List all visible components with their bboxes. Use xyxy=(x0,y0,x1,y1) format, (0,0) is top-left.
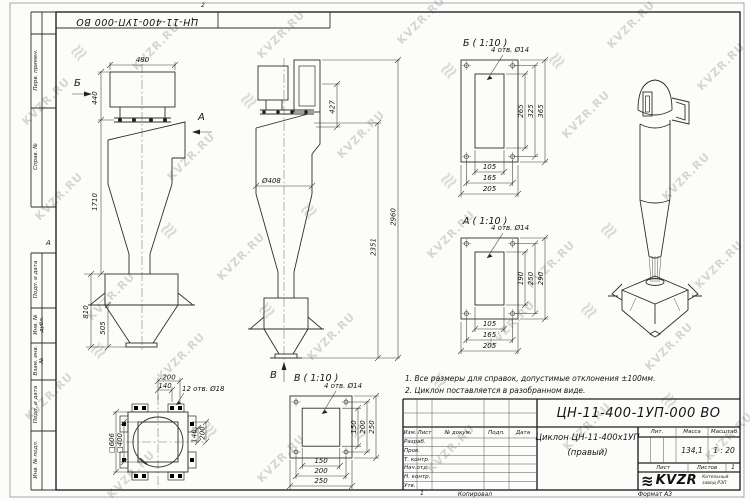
tb-col-list: Лист xyxy=(417,428,432,438)
side-view-dimensions: 480 440 1710 810 505 xyxy=(82,56,178,350)
dim-265: 265 xyxy=(517,104,525,118)
drawing-sheet: KVZR.RUKVZR.RUKVZR.RUKVZR.RUKVZR.RUKVZR.… xyxy=(0,0,750,500)
isometric-outline xyxy=(608,80,702,337)
section-label-a: А xyxy=(197,112,205,123)
margin-label-podp-data-1: Подп. и дата xyxy=(33,253,39,306)
front-view-outline xyxy=(248,60,324,358)
detail-a-holes: 4 отв. Ø14 xyxy=(491,224,529,232)
dim-427: 427 xyxy=(329,100,337,114)
tb-scale-value: 1 : 20 xyxy=(708,437,740,463)
margin-label-inv-dubl: Инв. № дубл. xyxy=(33,308,45,341)
detail-v-holes: 4 отв. Ø14 xyxy=(324,382,362,390)
tb-row-nkontr: Н. контр. xyxy=(404,473,432,482)
dim-165: 165 xyxy=(483,174,497,182)
dim-165: 165 xyxy=(483,331,497,339)
dim-150h: 150 xyxy=(314,457,328,465)
tb-col-data: Дата xyxy=(509,428,537,438)
dim-140-top: 140 xyxy=(158,382,172,390)
dim-1710: 1710 xyxy=(91,193,99,211)
dim-150: 150 xyxy=(350,420,358,434)
note-line-1: 1. Все размеры для справок, допустимые о… xyxy=(405,374,655,383)
margin-label-vzam-inv: Взам. инв. № xyxy=(33,343,45,378)
dim-250: 250 xyxy=(368,420,376,434)
tb-name-line1: Циклон ЦН-11-400х1УП xyxy=(538,431,637,445)
dim-365: 365 xyxy=(537,104,545,118)
detail-a-dimensions: 190 250 290 105 165 205 xyxy=(458,235,548,354)
margin-label-sprav-no: Справ. № xyxy=(33,108,39,205)
detail-a-leader: 4 отв. Ø14 xyxy=(487,224,529,258)
detail-b-leader: 4 отв. Ø14 xyxy=(487,46,529,80)
detail-view-v: В ( 1:10 ) 4 отв. Ø14 150 200 250 150 20… xyxy=(272,368,402,500)
base-plan-holes: 12 отв. Ø18 xyxy=(182,385,225,393)
section-arrow-b: Б xyxy=(72,78,92,97)
tb-col-podp: Подп. xyxy=(484,428,509,438)
tb-scale-label: Масштаб xyxy=(708,427,740,437)
tb-mass-value: 134,1 xyxy=(676,437,708,463)
side-view: 480 440 1710 810 505 Б А xyxy=(70,52,220,352)
dim-205: 205 xyxy=(483,342,497,350)
detail-v-dimensions: 150 200 250 150 200 250 xyxy=(287,393,379,489)
dim-2960: 2960 xyxy=(390,208,398,226)
section-arrow-a: А xyxy=(192,112,212,135)
top-doc-number: ЦН-11-400-1УП-000 ВО xyxy=(60,13,214,27)
tb-sheets-value: 1 xyxy=(726,463,740,472)
detail-b-outline xyxy=(461,60,518,162)
top-zone-mark: 2 xyxy=(201,2,205,9)
detail-v-leader: 4 отв. Ø14 xyxy=(322,382,362,414)
note-line-2: 2. Циклон поставляется в разобранном вид… xyxy=(405,386,585,395)
tb-row-nachotd: Нач.отд. xyxy=(404,464,432,473)
dim-325: 325 xyxy=(527,104,535,118)
detail-view-b: Б ( 1:10 ) 4 отв. Ø14 265 325 365 105 16… xyxy=(445,34,573,206)
tb-row-tkontr: Т. контр. xyxy=(404,455,432,464)
kvzr-logo-subtitle: Котельный завод РЭП xyxy=(702,475,728,486)
dim-200: 200 xyxy=(359,420,367,434)
front-view: Ø408 427 2351 2960 В xyxy=(238,52,413,387)
detail-view-a: А ( 1:10 ) 4 отв. Ø14 190 250 290 105 16… xyxy=(445,212,573,364)
dim-250h: 250 xyxy=(314,477,328,485)
kvzr-logo-text: KVZR xyxy=(656,473,698,488)
dim-810: 810 xyxy=(82,305,90,319)
side-view-outline xyxy=(88,72,195,347)
dim-480: 480 xyxy=(136,56,150,64)
dim-200-right: 200 xyxy=(199,426,207,440)
detail-b-dimensions: 265 325 365 105 165 205 xyxy=(458,57,548,197)
dim-dia408: Ø408 xyxy=(261,177,281,185)
tb-row-razrab: Разраб. xyxy=(404,438,432,447)
section-label-b: Б xyxy=(74,78,81,89)
bottom-copied-label: Копировал xyxy=(445,490,505,499)
tb-col-izm: Изм. xyxy=(403,428,417,438)
front-view-dimensions: Ø408 427 2351 2960 xyxy=(253,57,401,361)
base-plan-view: 200 140 12 отв. Ø18 140 200 □606 □400 xyxy=(80,372,238,490)
company-logo: ≋ KVZR Котельный завод РЭП xyxy=(641,472,739,489)
tb-row-utv: Утв. xyxy=(404,481,432,490)
dim-105: 105 xyxy=(483,163,497,171)
margin-label-perv-primen: Перв. примен. xyxy=(33,34,39,106)
dim-sq606: □606 xyxy=(108,432,116,453)
tb-lit-label: Лит. xyxy=(638,427,676,437)
kvzr-sub-line2: завод РЭП xyxy=(702,481,728,487)
tb-row-prov: Пров. xyxy=(404,447,432,456)
dim-250: 250 xyxy=(527,271,535,285)
dim-290: 290 xyxy=(537,271,545,285)
isometric-view xyxy=(592,70,722,335)
dim-140-right: 140 xyxy=(191,429,199,443)
dim-190: 190 xyxy=(517,271,525,285)
detail-v-outline xyxy=(290,396,352,458)
tb-mass-label: Масса xyxy=(676,427,708,437)
kvzr-logo-icon: ≋ xyxy=(641,473,654,489)
dim-200h: 200 xyxy=(314,467,328,475)
detail-a-outline xyxy=(461,238,518,319)
dim-505: 505 xyxy=(99,321,107,335)
tb-col-docnum: № докум. xyxy=(432,428,484,438)
dim-105: 105 xyxy=(483,320,497,328)
dim-440: 440 xyxy=(91,91,99,105)
margin-label-podp-data-2: Подп. и дата xyxy=(33,380,39,429)
tb-designation: ЦН-11-400-1УП-000 ВО xyxy=(538,400,739,426)
tb-sheet-label: Лист xyxy=(638,463,688,472)
left-zone-mark: А xyxy=(46,239,51,247)
tb-sheets-label: Листов xyxy=(688,463,726,472)
bottom-sheet-number: 1 xyxy=(420,490,424,497)
bottom-format-label: Формат А3 xyxy=(625,490,685,499)
dim-205: 205 xyxy=(483,185,497,193)
detail-b-holes: 4 отв. Ø14 xyxy=(491,46,529,54)
dim-2351: 2351 xyxy=(370,238,378,256)
tb-name-line2: (правый) xyxy=(538,446,637,460)
dim-200-top: 200 xyxy=(162,374,176,382)
dim-sq400: □400 xyxy=(116,432,124,453)
margin-label-inv-podl: Инв. № подл. xyxy=(33,431,39,488)
